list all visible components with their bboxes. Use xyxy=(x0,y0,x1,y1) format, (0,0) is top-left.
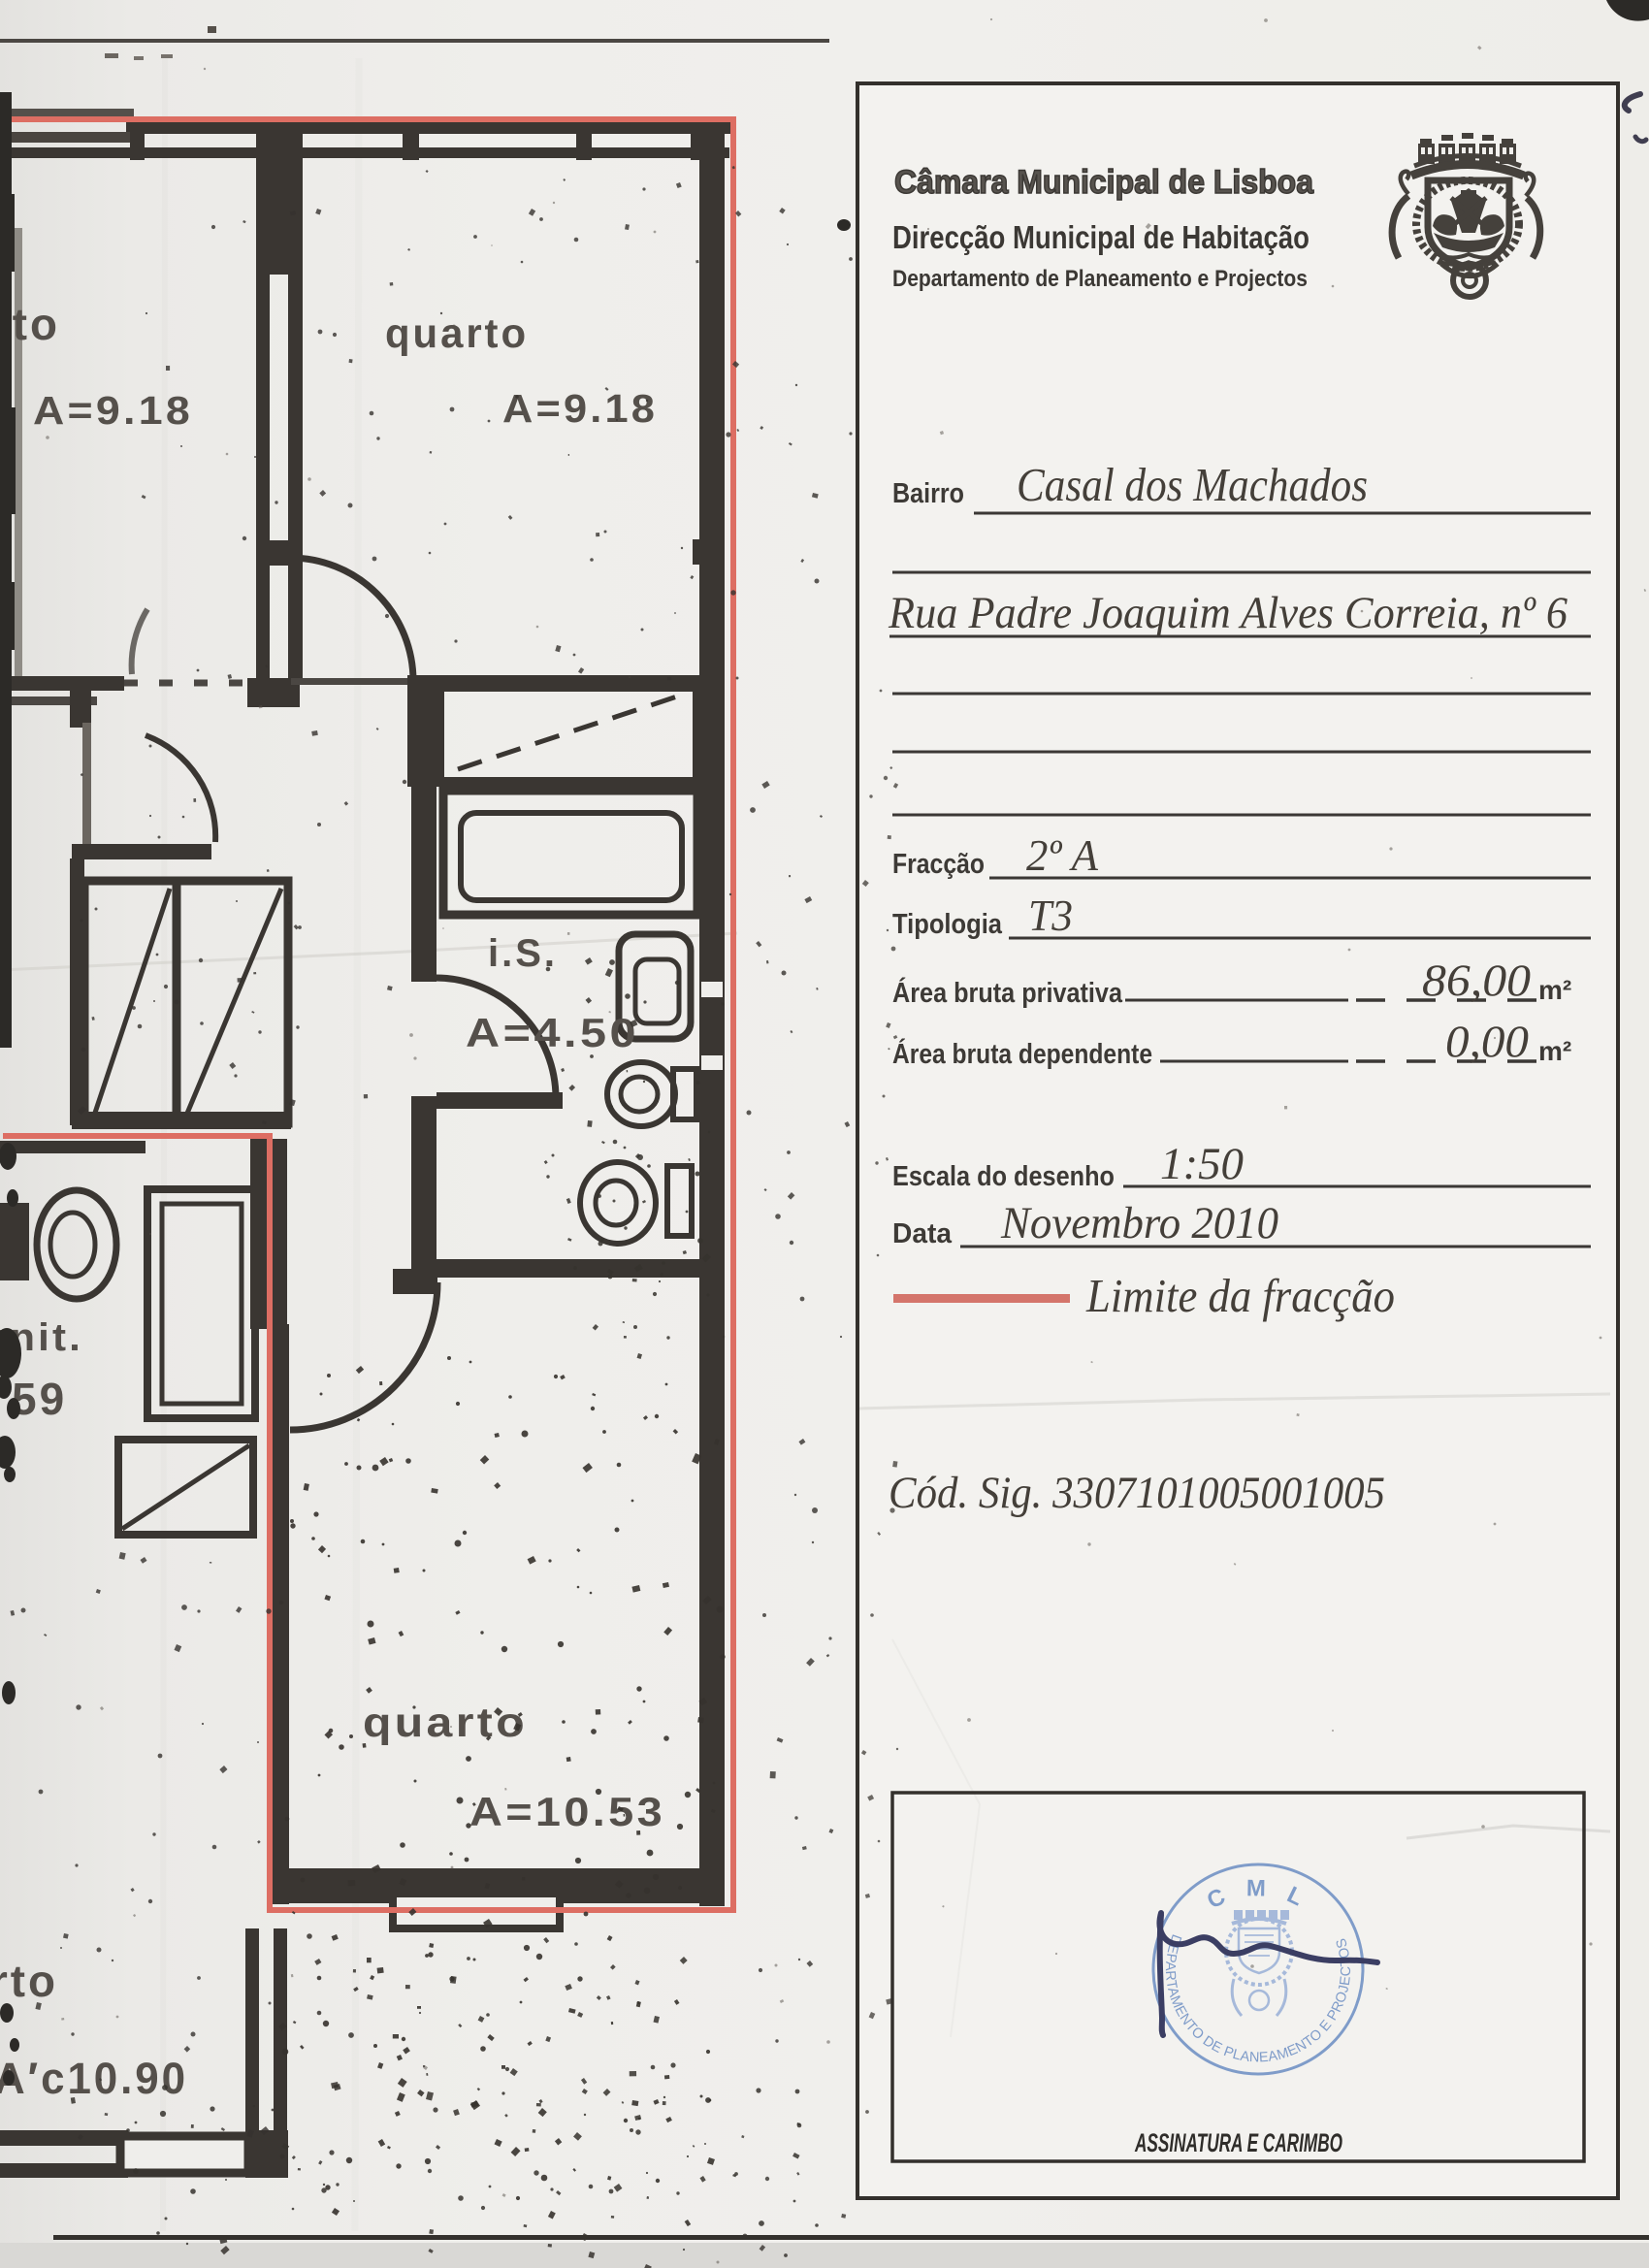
svg-text:Tipologia: Tipologia xyxy=(892,909,1003,940)
svg-text:Data: Data xyxy=(892,1218,953,1249)
svg-text:quarto: quarto xyxy=(363,1700,528,1746)
svg-text:A=4.50: A=4.50 xyxy=(466,1010,639,1055)
svg-text:A=9.18: A=9.18 xyxy=(33,388,193,433)
svg-text:A=9.18: A=9.18 xyxy=(502,386,658,431)
svg-text:A=10.53: A=10.53 xyxy=(469,1789,665,1834)
svg-text:Departamento de Planeamento e: Departamento de Planeamento e Projectos xyxy=(892,266,1308,292)
svg-text:0,00: 0,00 xyxy=(1445,1017,1529,1067)
svg-text:Rua Padre Joaquim Alves Correi: Rua Padre Joaquim Alves Correia, nº 6 xyxy=(888,588,1568,638)
svg-text:Direcção Municipal de Habitaçã: Direcção Municipal de Habitação xyxy=(892,219,1309,255)
svg-text:rto: rto xyxy=(0,1956,58,2006)
svg-text:Limite da fracção: Limite da fracção xyxy=(1085,1269,1395,1322)
svg-text:quarto: quarto xyxy=(385,310,529,357)
svg-text:Área bruta dependente: Área bruta dependente xyxy=(892,1037,1152,1070)
svg-text:1:50: 1:50 xyxy=(1160,1139,1244,1189)
svg-text:59: 59 xyxy=(12,1374,67,1424)
svg-text:m²: m² xyxy=(1538,1036,1571,1066)
svg-text:Casal dos Machados: Casal dos Machados xyxy=(1017,458,1368,511)
svg-text:A′c10.90: A′c10.90 xyxy=(0,2054,188,2103)
svg-text:Fracção: Fracção xyxy=(892,849,985,880)
svg-text:86,00: 86,00 xyxy=(1422,956,1531,1006)
svg-text:Câmara Municipal de Lisboa: Câmara Municipal de Lisboa xyxy=(894,164,1314,201)
svg-text:Cód. Sig. 3307101005001005: Cód. Sig. 3307101005001005 xyxy=(889,1468,1385,1518)
svg-text:T3: T3 xyxy=(1028,891,1073,940)
svg-text:Área bruta privativa: Área bruta privativa xyxy=(892,976,1123,1009)
svg-text:m²: m² xyxy=(1538,975,1571,1005)
svg-text:2º A: 2º A xyxy=(1026,830,1099,880)
svg-text:Bairro: Bairro xyxy=(892,478,964,509)
svg-text:Novembro 2010: Novembro 2010 xyxy=(1000,1198,1278,1248)
svg-text:ASSINATURA E CARIMBO: ASSINATURA E CARIMBO xyxy=(1134,2128,1342,2157)
svg-text:Escala do desenho: Escala do desenho xyxy=(892,1161,1115,1192)
